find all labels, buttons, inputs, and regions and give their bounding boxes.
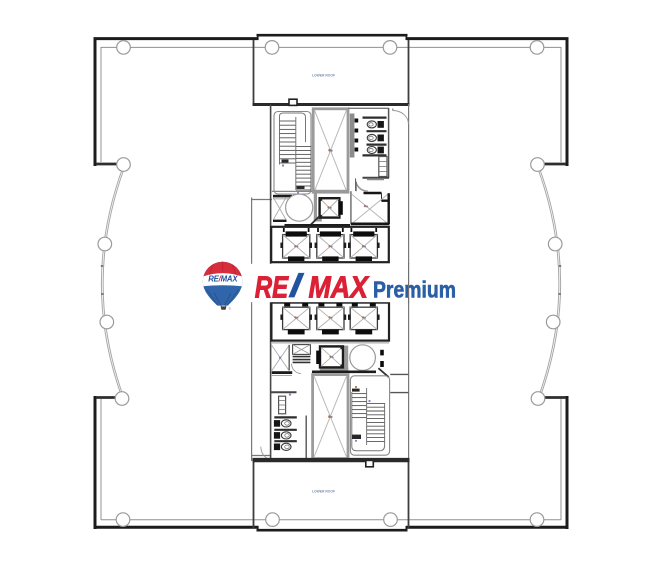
svg-text:LOWER ROOF: LOWER ROOF	[312, 74, 336, 78]
svg-text:®: ®	[228, 307, 231, 311]
svg-text:LOWER ROOF: LOWER ROOF	[312, 490, 336, 494]
svg-text:RE/MAX: RE/MAX	[208, 274, 238, 283]
svg-text:Premium: Premium	[373, 277, 456, 303]
svg-text:RE: RE	[255, 270, 290, 305]
svg-text:MAX: MAX	[309, 270, 370, 305]
